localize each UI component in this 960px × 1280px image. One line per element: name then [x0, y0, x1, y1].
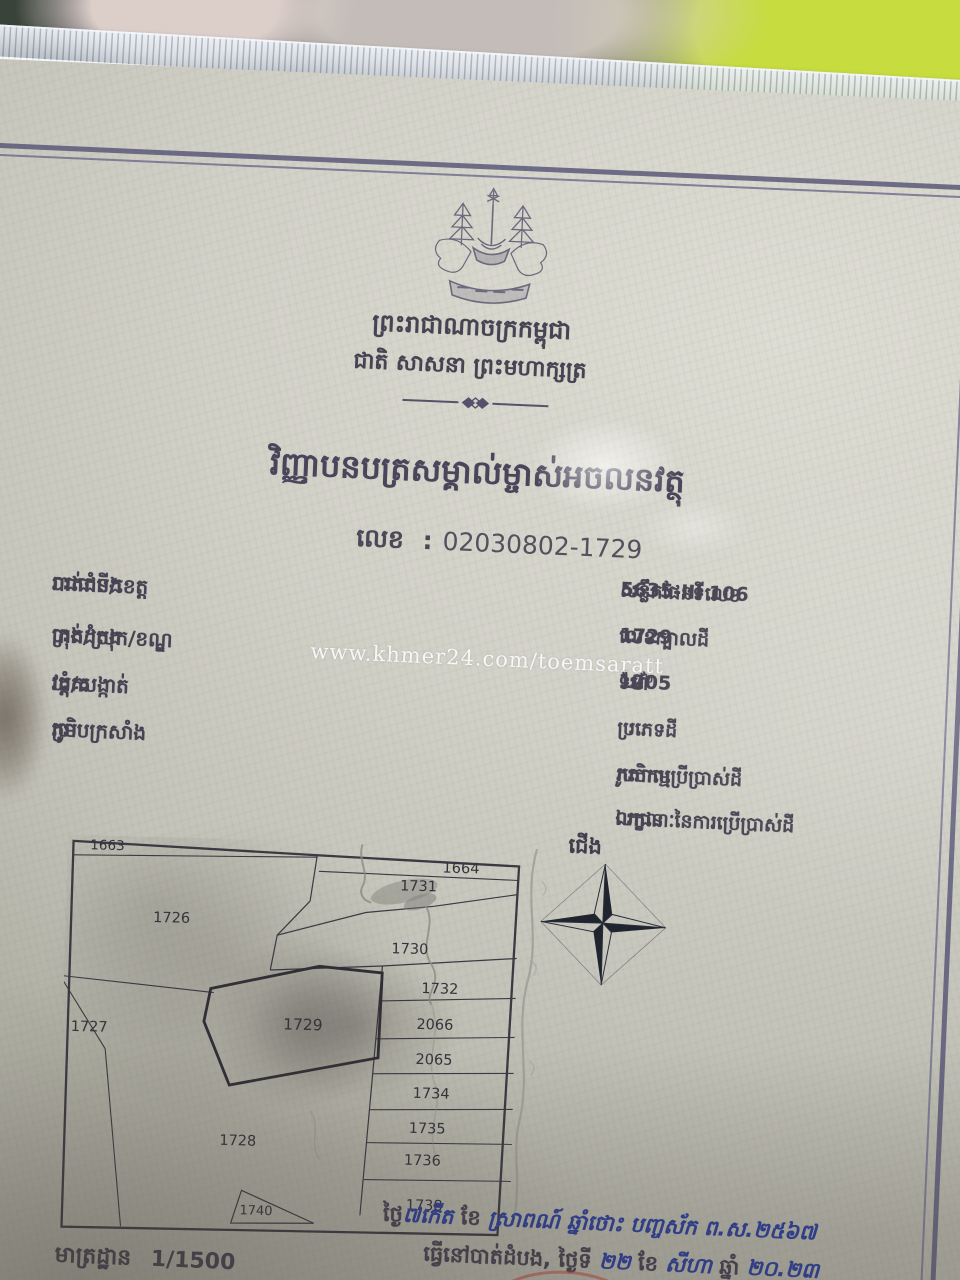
parcel-label: 1663: [90, 837, 125, 854]
parcel-label: 1734: [412, 1086, 449, 1103]
parcel-label: 1731: [400, 878, 437, 895]
parcel-label: 1728: [219, 1133, 256, 1150]
parcel-label: 1664: [442, 861, 479, 878]
parcel-label: 1730: [391, 941, 428, 958]
kingdom-title: ព្រះរាជាណាចក្រកម្ពុជា: [372, 307, 572, 351]
parcel-label-1729: 1729: [283, 1015, 323, 1034]
parcel-label: 2065: [415, 1052, 452, 1069]
parcel-label: 1736: [404, 1153, 441, 1170]
parcel-fields: សន្លឹកផែនទីលេខ:5635-III 106 លេខក្បាលដី:1…: [608, 579, 960, 885]
parcel-label: 1727: [71, 1019, 108, 1036]
land-title-certificate: ព្រះរាជាណាចក្រកម្ពុជា ជាតិ សាសនា ព្រះមហា…: [0, 57, 960, 1280]
parcel-label: 1740: [239, 1203, 272, 1219]
photo-of-land-title-document: ព្រះរាជាណាចក្រកម្ពុជា ជាតិ សាសនា ព្រះមហា…: [0, 0, 960, 1280]
compass-rose-icon: [535, 855, 671, 991]
location-fields: រាជធានី/ខេត្ត:បាត់ដំបង ក្រុង/ស្រុក/ខណ្ឌ:…: [44, 570, 483, 799]
national-motto: ជាតិ សាសនា ព្រះមហាក្សត្រ: [353, 347, 587, 389]
certificate-number-label: លេខ: [356, 523, 405, 554]
parcel-label: 1726: [153, 910, 190, 927]
parcel-label: 2066: [416, 1017, 453, 1034]
certificate-title: វិញ្ញាបនបត្រសម្គាល់ម្ចាស់អចលនវត្ថុ: [269, 443, 686, 508]
ornamental-divider: [400, 393, 550, 414]
map-scale: មាត្រដ្ឋាន 1/1500: [54, 1241, 236, 1280]
parcel-label: 1735: [409, 1121, 446, 1138]
certificate-number-line: លេខ :02030802-1729: [355, 523, 643, 571]
royal-arms-of-cambodia-icon: [422, 184, 560, 320]
cadastral-map: 1663 1664 1726 1731 1730 1732 1727 1729 …: [57, 835, 525, 1245]
colon: :: [412, 525, 443, 555]
scale-value: 1/1500: [138, 1246, 236, 1275]
scale-label: មាត្រដ្ឋាន: [54, 1243, 131, 1271]
certificate-number: 02030802-1729: [442, 527, 643, 565]
parcel-label: 1732: [421, 981, 458, 998]
